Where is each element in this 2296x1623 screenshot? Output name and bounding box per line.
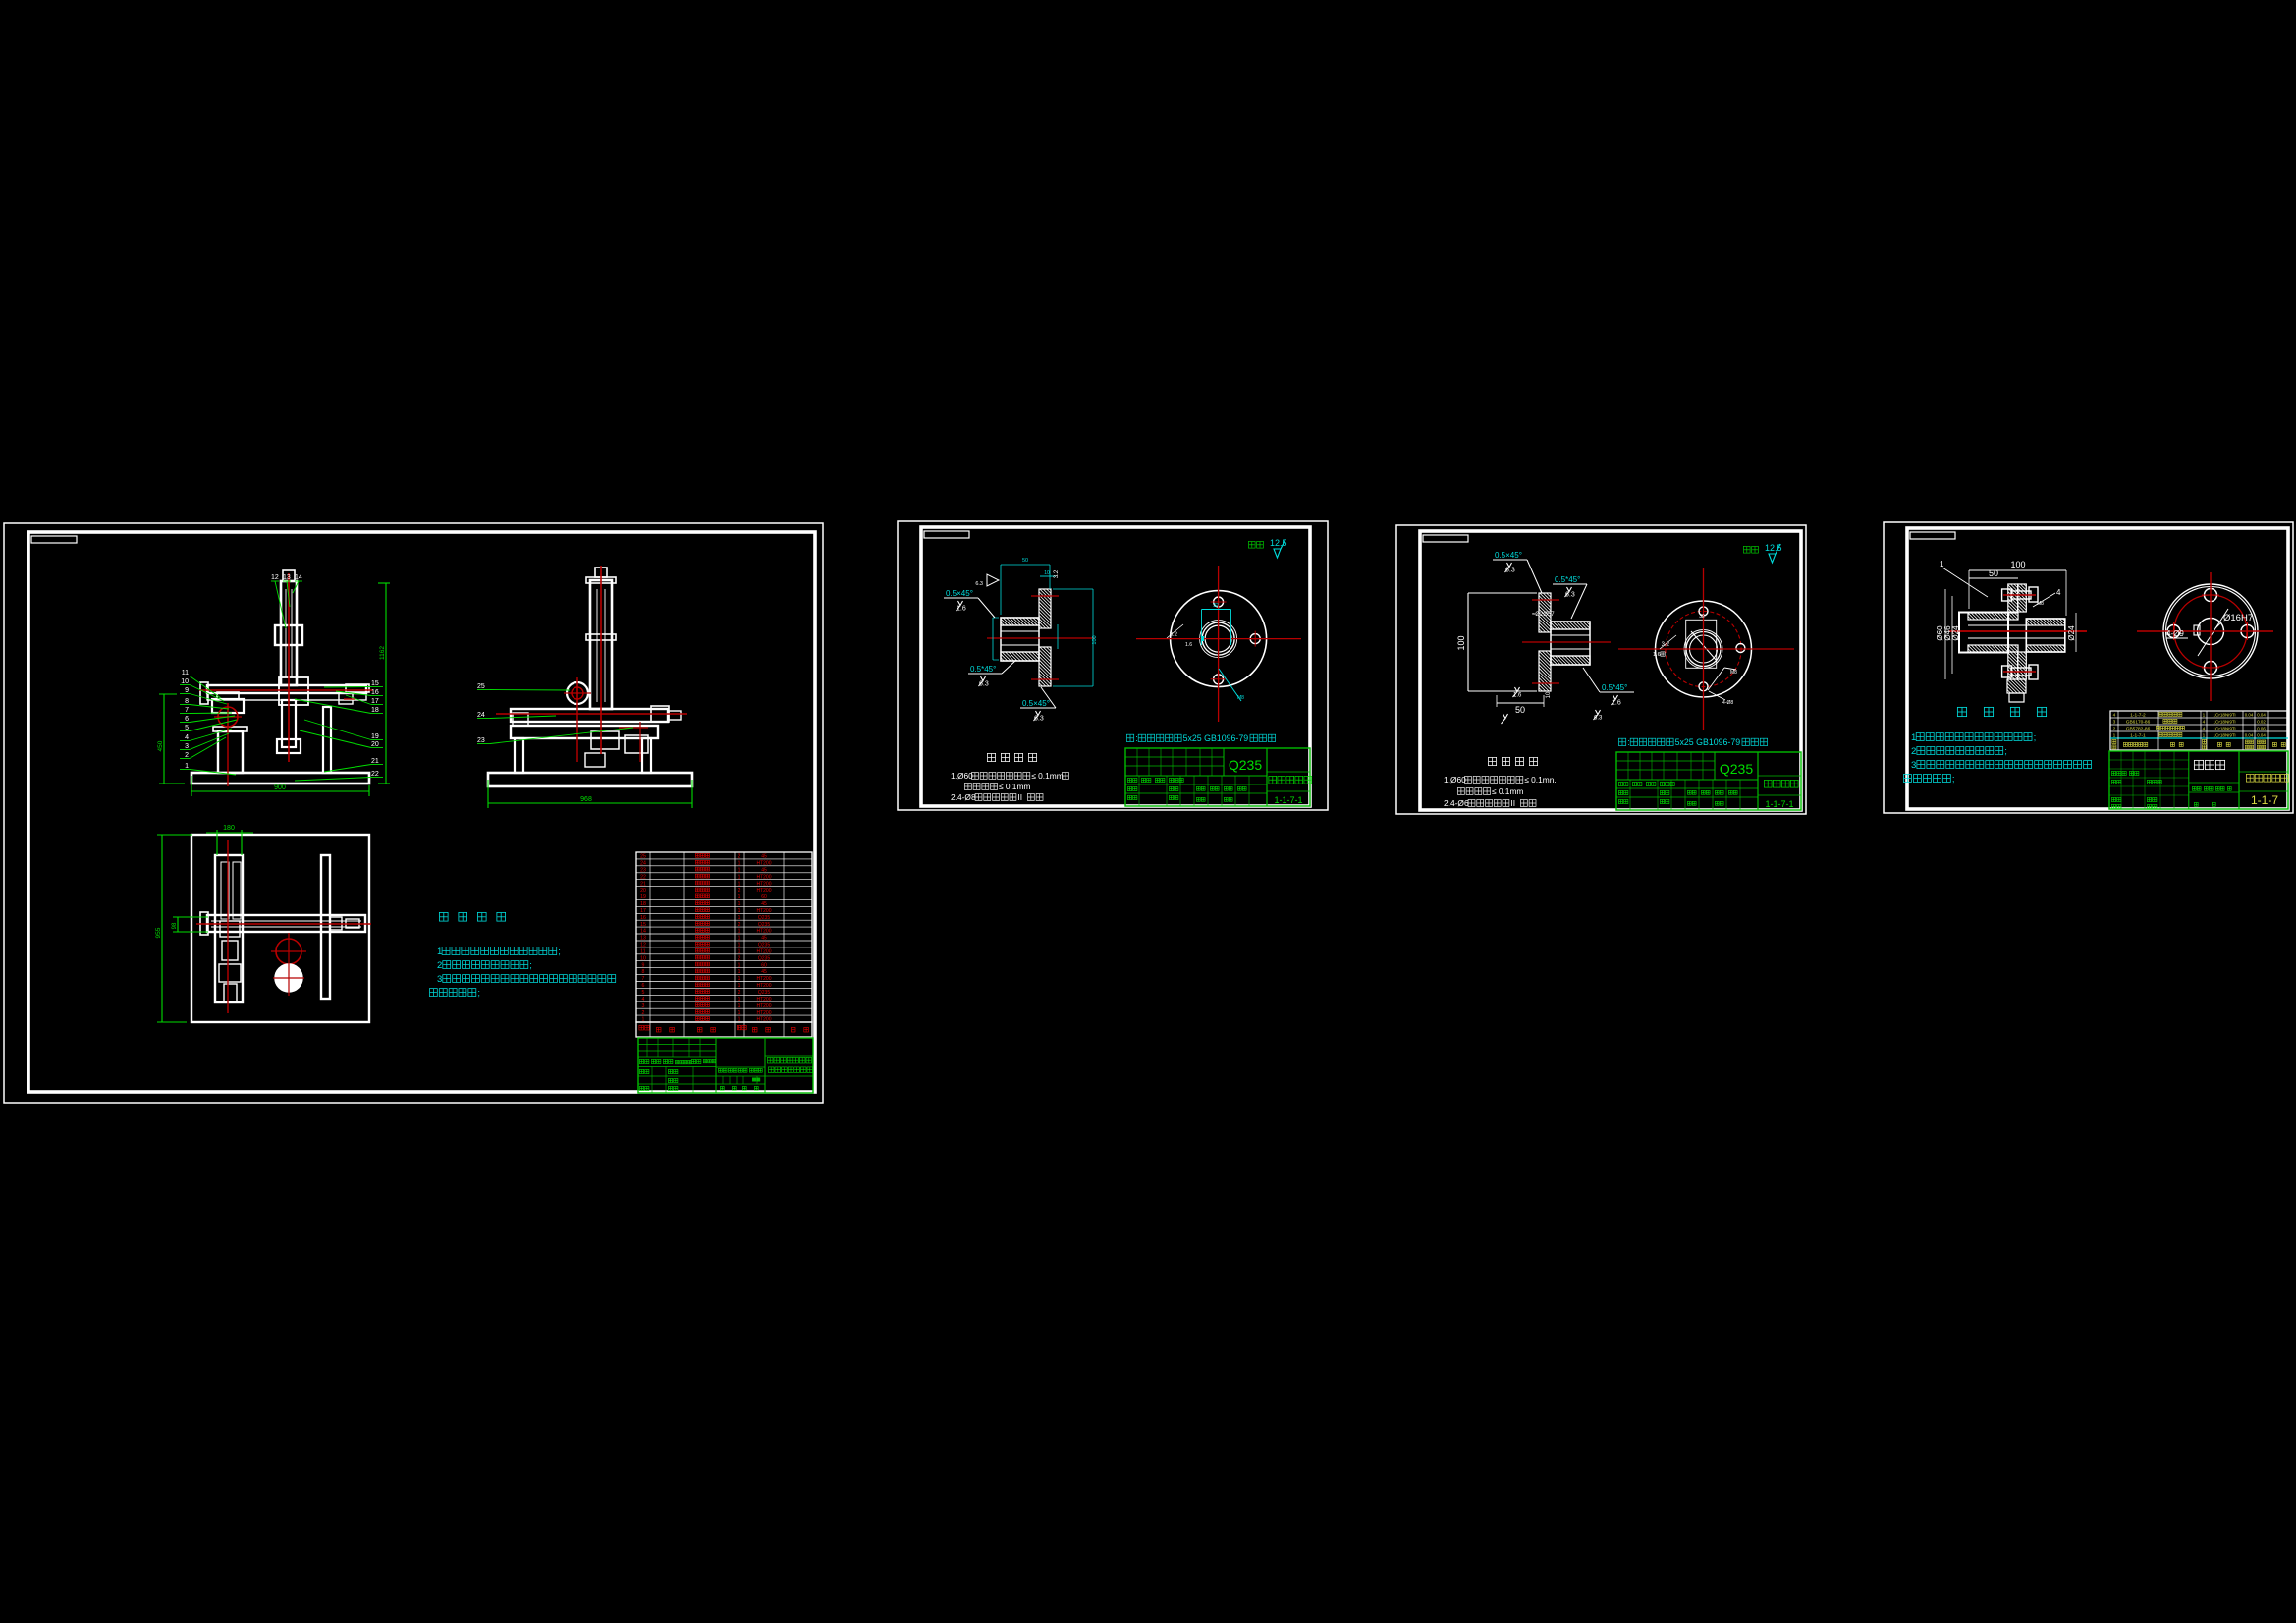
svg-text:1: 1 [738, 874, 741, 880]
svg-text:M8: M8 [2037, 601, 2044, 607]
svg-text:5: 5 [185, 725, 189, 731]
svg-text:1: 1 [1940, 560, 1944, 568]
svg-text:19: 19 [371, 733, 379, 740]
svg-text:HT200: HT200 [756, 1010, 771, 1016]
svg-text:450: 450 [157, 740, 164, 751]
svg-text:7: 7 [642, 976, 645, 982]
svg-text:11: 11 [182, 670, 189, 676]
svg-text:19: 19 [640, 894, 646, 900]
svg-text:Q235: Q235 [758, 943, 770, 948]
svg-text:21: 21 [371, 758, 379, 765]
svg-text:5x25 GB1096-79: 5x25 GB1096-79 [1183, 733, 1249, 743]
svg-text:6.3: 6.3 [1034, 716, 1044, 723]
svg-text:16: 16 [371, 689, 379, 696]
svg-text:1: 1 [738, 949, 741, 955]
svg-text:20: 20 [640, 888, 646, 893]
svg-text:0.04: 0.04 [2257, 712, 2266, 717]
svg-text:6.3: 6.3 [1505, 568, 1515, 574]
svg-text:HT200: HT200 [756, 861, 771, 867]
svg-text:1: 1 [738, 901, 741, 907]
svg-text:5: 5 [642, 990, 645, 996]
svg-text:4: 4 [2203, 719, 2206, 725]
svg-text:0.5*45°: 0.5*45° [1555, 575, 1580, 584]
svg-text:Q235: Q235 [758, 990, 770, 996]
svg-text:1: 1 [738, 861, 741, 867]
svg-text:6.3: 6.3 [1594, 716, 1603, 722]
svg-text::: : [1135, 733, 1137, 743]
svg-text:≤ 0.1mm: ≤ 0.1mm [999, 782, 1031, 791]
svg-text:1: 1 [738, 929, 741, 935]
svg-text:15: 15 [371, 680, 379, 687]
svg-text:20: 20 [371, 741, 379, 748]
svg-text:HT200: HT200 [756, 976, 771, 982]
svg-text:23: 23 [477, 737, 485, 744]
svg-text:25: 25 [477, 683, 485, 690]
svg-text:100: 100 [2010, 560, 2025, 569]
svg-text:2: 2 [738, 854, 741, 860]
svg-text:100: 100 [1092, 635, 1098, 644]
svg-text:1: 1 [738, 976, 741, 982]
svg-text:3: 3 [1911, 760, 1916, 771]
svg-text:23: 23 [640, 867, 646, 873]
svg-text:2: 2 [738, 955, 741, 961]
svg-text:1.6: 1.6 [1185, 642, 1192, 648]
svg-text:98: 98 [172, 922, 178, 929]
svg-text::: : [1627, 737, 1629, 747]
svg-text:HT200: HT200 [756, 997, 771, 1002]
svg-text:1: 1 [185, 763, 189, 770]
svg-text:1: 1 [738, 1017, 741, 1023]
svg-text:12.5: 12.5 [1270, 538, 1287, 548]
svg-text:GB5782-86: GB5782-86 [2126, 726, 2151, 731]
svg-text:0.5*45°: 0.5*45° [1602, 683, 1627, 692]
svg-text:0.5×45°: 0.5×45° [946, 589, 973, 598]
svg-text:1Cr18Ni9Ti: 1Cr18Ni9Ti [2213, 719, 2235, 724]
svg-text:0.04: 0.04 [2257, 732, 2266, 737]
svg-text:HT200: HT200 [756, 881, 771, 887]
svg-text:1-1-7: 1-1-7 [2251, 793, 2278, 807]
svg-text:0.04: 0.04 [2245, 732, 2254, 737]
svg-text:17: 17 [640, 908, 646, 914]
svg-text:1.6: 1.6 [1513, 693, 1522, 699]
svg-text:Q235: Q235 [758, 915, 770, 921]
svg-text:Ø24: Ø24 [2067, 625, 2076, 641]
svg-text:3: 3 [437, 974, 442, 985]
svg-text:4: 4 [2056, 588, 2061, 597]
svg-text:1.6: 1.6 [1612, 700, 1621, 707]
svg-text:;: ; [529, 960, 532, 971]
svg-text:6: 6 [185, 716, 189, 723]
svg-text:4-Ø9: 4-Ø9 [2166, 629, 2184, 638]
svg-text:0.06: 0.06 [2257, 726, 2266, 730]
svg-text:25: 25 [640, 854, 646, 860]
svg-text:1-1-7-1: 1-1-7-1 [1274, 795, 1302, 805]
svg-text:≤ 0.1mn.: ≤ 0.1mn. [1524, 775, 1557, 784]
svg-text:11: 11 [640, 949, 645, 955]
svg-text:900: 900 [274, 784, 286, 791]
svg-text:0.5*45°: 0.5*45° [970, 665, 996, 674]
svg-text:HT200: HT200 [756, 874, 771, 880]
svg-text:1: 1 [2203, 732, 2206, 738]
svg-text:12: 12 [640, 943, 646, 948]
svg-text:≤ 0.1mm: ≤ 0.1mm [1031, 771, 1064, 781]
svg-text:14: 14 [295, 574, 302, 581]
svg-text:3: 3 [185, 743, 189, 750]
svg-text:4-Ø8: 4-Ø8 [1722, 700, 1733, 706]
svg-text:12: 12 [271, 574, 279, 581]
svg-text:1: 1 [738, 997, 741, 1002]
svg-text:13: 13 [640, 936, 646, 942]
svg-text:1: 1 [738, 969, 741, 975]
svg-text:Ø16H7: Ø16H7 [2223, 613, 2253, 623]
svg-text:Q235: Q235 [1229, 757, 1262, 773]
svg-text:180: 180 [223, 825, 235, 832]
svg-text:4: 4 [2203, 726, 2206, 731]
svg-text:1: 1 [738, 936, 741, 942]
svg-text:12.5: 12.5 [1765, 543, 1782, 553]
svg-text:2: 2 [437, 960, 442, 971]
svg-text:7: 7 [185, 707, 189, 714]
svg-text:6: 6 [642, 983, 645, 989]
svg-text:50: 50 [1989, 568, 1998, 578]
svg-text:2: 2 [738, 888, 741, 893]
svg-text:14: 14 [640, 929, 646, 935]
svg-text:1: 1 [738, 915, 741, 921]
svg-text:;: ; [558, 947, 561, 957]
svg-text:1: 1 [2113, 732, 2116, 738]
svg-text:1Cr18Ni9Ti: 1Cr18Ni9Ti [2213, 732, 2235, 737]
svg-text:1: 1 [738, 894, 741, 900]
svg-text:Q235: Q235 [1720, 761, 1753, 777]
svg-text:1.6: 1.6 [1653, 652, 1661, 658]
svg-text:1.Ø60: 1.Ø60 [1444, 775, 1466, 784]
svg-text:≤ 0.1mm: ≤ 0.1mm [1492, 786, 1524, 796]
svg-text:16: 16 [640, 915, 646, 921]
svg-text:2: 2 [642, 1010, 645, 1016]
svg-text:8: 8 [185, 698, 189, 705]
svg-text:HT200: HT200 [756, 929, 771, 935]
svg-text:2: 2 [1911, 746, 1916, 757]
svg-text:M8: M8 [1237, 695, 1244, 701]
svg-text:0.5×45°: 0.5×45° [1495, 551, 1522, 560]
svg-text:13: 13 [283, 574, 291, 581]
svg-text:1: 1 [1911, 732, 1916, 743]
svg-text:4: 4 [2113, 712, 2116, 718]
svg-text:3: 3 [2113, 719, 2116, 725]
svg-text:1162: 1162 [379, 646, 386, 660]
svg-text:18: 18 [371, 707, 379, 714]
svg-text:45: 45 [761, 867, 767, 873]
svg-text:1: 1 [738, 983, 741, 989]
svg-text:45: 45 [761, 969, 767, 975]
svg-text:1: 1 [738, 881, 741, 887]
svg-text:1.Ø60: 1.Ø60 [951, 771, 973, 781]
svg-text:9: 9 [642, 962, 645, 968]
svg-text:HT200: HT200 [756, 1003, 771, 1009]
svg-text:0.02: 0.02 [2257, 719, 2266, 724]
svg-text:2: 2 [738, 922, 741, 928]
svg-text:1: 1 [738, 962, 741, 968]
svg-text:II: II [1510, 798, 1515, 808]
svg-text:15: 15 [640, 922, 646, 928]
svg-text:8: 8 [642, 969, 645, 975]
svg-text:HT200: HT200 [756, 949, 771, 955]
svg-text:18: 18 [640, 901, 646, 907]
svg-text:1-1-7-2: 1-1-7-2 [2130, 712, 2146, 718]
svg-text:45: 45 [761, 901, 767, 907]
svg-text:2: 2 [2113, 726, 2116, 731]
svg-text:1Cr18Ni9Ti: 1Cr18Ni9Ti [2213, 726, 2235, 730]
svg-text:2.4-Ø8: 2.4-Ø8 [951, 792, 976, 802]
svg-text:Q235: Q235 [758, 955, 770, 961]
svg-text:;: ; [477, 988, 480, 999]
svg-text:2: 2 [738, 990, 741, 996]
svg-text:1-1-7-1: 1-1-7-1 [2130, 732, 2146, 738]
svg-text:4: 4 [185, 734, 189, 741]
svg-text:24: 24 [477, 712, 485, 719]
svg-text:1-1-7-1: 1-1-7-1 [1765, 799, 1793, 809]
svg-text:M8: M8 [1730, 670, 1737, 676]
svg-text:6.3: 6.3 [1565, 592, 1575, 599]
svg-text:0.04: 0.04 [2245, 712, 2254, 717]
svg-text:3: 3 [642, 1003, 645, 1009]
svg-text:1: 1 [738, 908, 741, 914]
svg-text:968: 968 [580, 796, 592, 803]
svg-text:0.5×45°: 0.5×45° [1022, 699, 1050, 708]
svg-text:1: 1 [738, 867, 741, 873]
svg-text:10: 10 [181, 678, 189, 685]
svg-text:1: 1 [738, 1003, 741, 1009]
svg-text:9: 9 [185, 687, 189, 694]
svg-text:3.2: 3.2 [1662, 642, 1670, 648]
svg-text:22: 22 [640, 874, 646, 880]
svg-text:HT200: HT200 [756, 983, 771, 989]
svg-text:2: 2 [185, 752, 189, 759]
svg-text:;: ; [1952, 774, 1955, 784]
svg-text:1: 1 [738, 943, 741, 948]
svg-text:45: 45 [761, 936, 767, 942]
svg-text:50: 50 [1515, 705, 1525, 715]
svg-text:HT200: HT200 [756, 908, 771, 914]
svg-text:60: 60 [761, 962, 767, 968]
svg-text:≈Ø2Ø57: ≈Ø2Ø57 [1532, 612, 1555, 618]
svg-text:1.6: 1.6 [957, 606, 966, 613]
svg-text:17: 17 [371, 698, 379, 705]
svg-text:32: 32 [1699, 614, 1705, 620]
svg-text:24: 24 [640, 861, 646, 867]
svg-text:6.3: 6.3 [979, 681, 989, 688]
svg-text:45: 45 [761, 854, 767, 860]
svg-text:1: 1 [437, 947, 442, 957]
svg-text:;: ; [2004, 746, 2007, 757]
svg-text:1Cr18Ni9Ti: 1Cr18Ni9Ti [2213, 712, 2235, 717]
svg-text:HT200: HT200 [756, 888, 771, 893]
svg-text:;: ; [2034, 732, 2037, 743]
svg-text:4: 4 [642, 997, 645, 1002]
svg-text:955: 955 [155, 927, 162, 938]
svg-text:Q235: Q235 [758, 922, 770, 928]
svg-text:10: 10 [640, 955, 646, 961]
svg-text:Ø24: Ø24 [1951, 625, 1960, 641]
svg-text:1: 1 [2203, 712, 2206, 718]
svg-text:100: 100 [1456, 635, 1466, 650]
svg-text:6.3: 6.3 [975, 581, 983, 587]
svg-text:10: 10 [1546, 691, 1552, 698]
svg-text:II: II [1017, 792, 1022, 802]
svg-text:60: 60 [761, 894, 767, 900]
svg-text:5x25 GB1096-79: 5x25 GB1096-79 [1675, 737, 1741, 747]
svg-text:3.2: 3.2 [1054, 569, 1060, 578]
svg-text:32: 32 [1213, 603, 1219, 609]
svg-text:1: 1 [738, 1010, 741, 1016]
svg-text:21: 21 [640, 881, 646, 887]
svg-text:GB6170-86: GB6170-86 [2126, 719, 2151, 725]
svg-text:1: 1 [642, 1017, 645, 1023]
svg-text:2.4-Ø6: 2.4-Ø6 [1444, 798, 1469, 808]
svg-text:10: 10 [1044, 570, 1050, 576]
svg-text:50: 50 [1022, 558, 1028, 564]
svg-text:HT200: HT200 [756, 1017, 771, 1023]
svg-text:22: 22 [371, 771, 379, 778]
